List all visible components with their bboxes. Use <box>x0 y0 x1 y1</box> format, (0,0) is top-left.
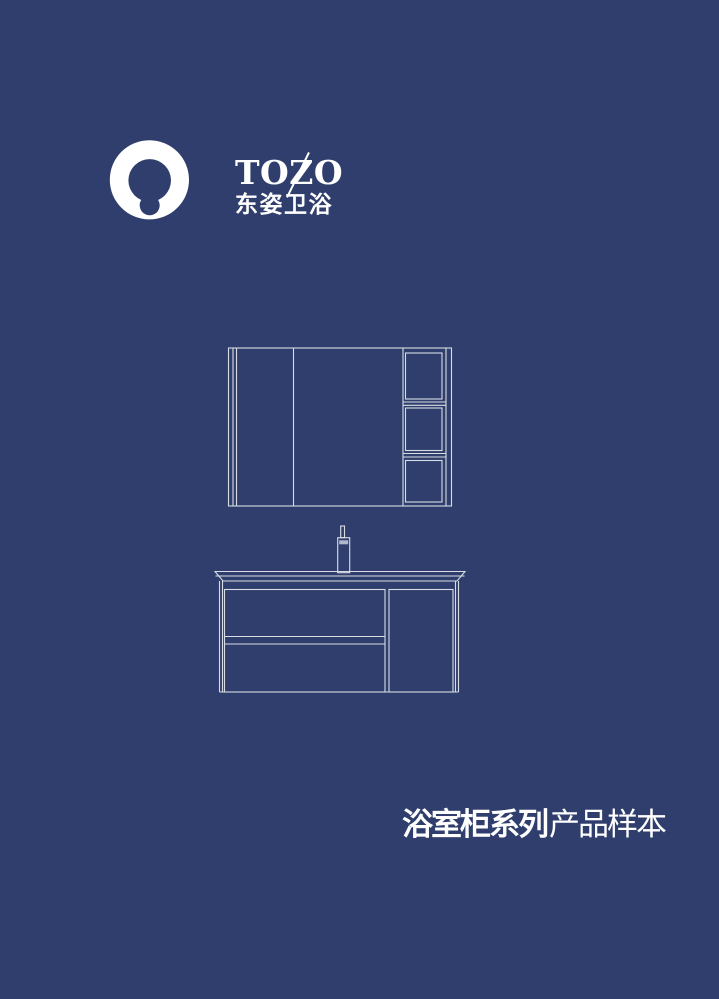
mirror-cabinet-drawing <box>229 348 452 506</box>
door-section <box>389 590 453 693</box>
vanity-cabinet-drawing <box>220 581 459 692</box>
cover-title: 浴室柜系列产品样本 <box>402 808 665 842</box>
cover-title-series: 浴室柜系列 <box>402 807 547 842</box>
faucet-drawing <box>338 526 350 573</box>
drawer-section <box>225 590 386 693</box>
bathroom-vanity-illustration <box>0 0 719 999</box>
cover-title-suffix: 产品样本 <box>549 807 665 842</box>
catalog-cover-page: TOZO 东姿卫浴 <box>0 0 719 999</box>
